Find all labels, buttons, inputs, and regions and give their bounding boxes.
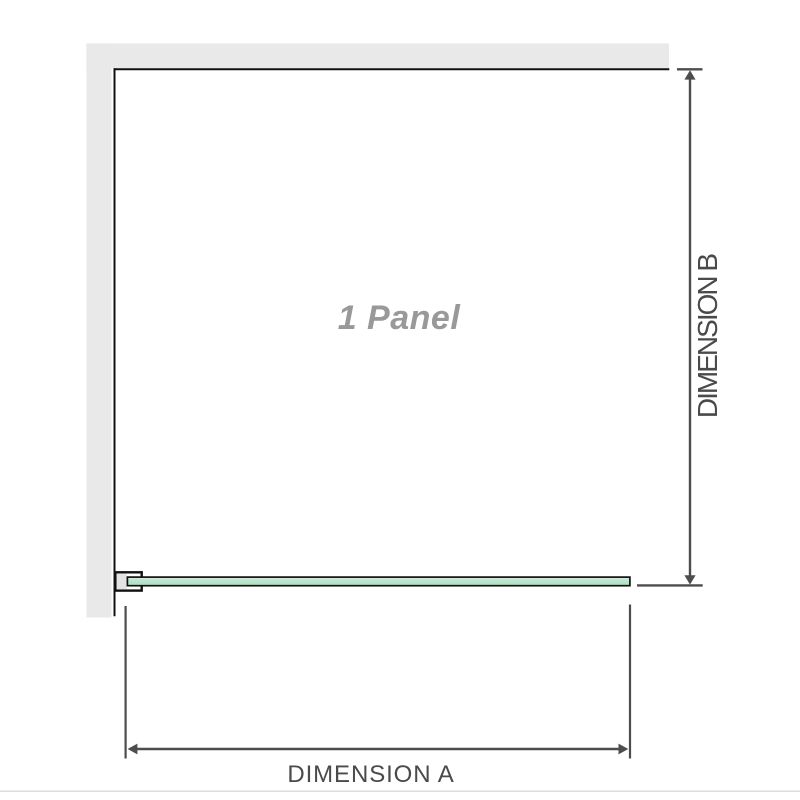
svg-text:DIMENSION B: DIMENSION B — [692, 254, 723, 418]
svg-text:DIMENSION A: DIMENSION A — [287, 761, 454, 788]
svg-text:1 Panel: 1 Panel — [338, 299, 462, 337]
